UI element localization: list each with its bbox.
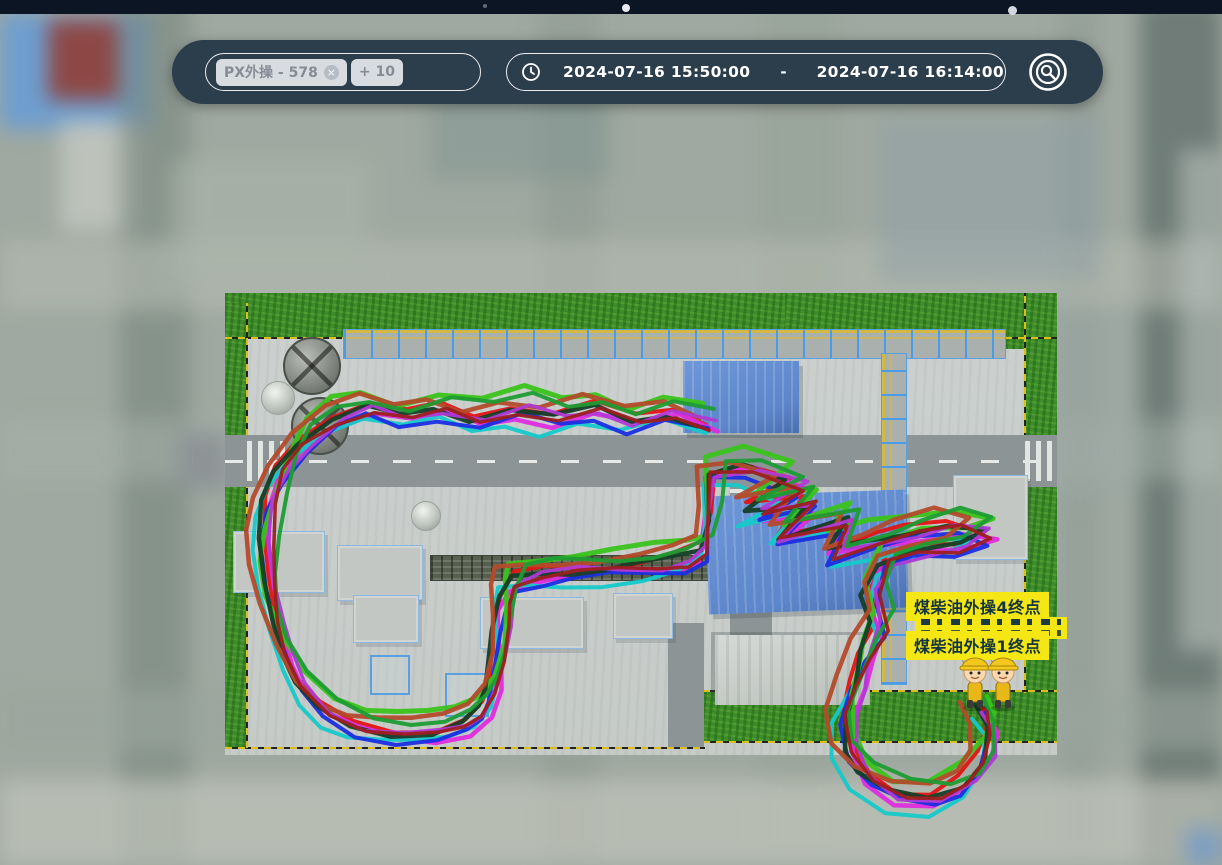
worker-avatar-icon (986, 650, 1020, 712)
clock-icon (521, 62, 541, 82)
trajectory-overlay (0, 0, 1222, 865)
worker-avatars[interactable] (958, 650, 1020, 712)
start-time-value[interactable]: 2024-07-16 15:50:00 (563, 63, 750, 81)
end-time-value[interactable]: 2024-07-16 16:14:00 (817, 63, 1004, 81)
clipped-text-fragment (921, 619, 1061, 625)
time-range-separator: - (780, 63, 786, 81)
person-tag-label: PX外操 - 578 (224, 62, 318, 82)
person-tag-chip[interactable]: PX外操 - 578 × (216, 59, 347, 86)
person-filter-input[interactable]: PX外操 - 578 × + 10 (205, 53, 481, 91)
light-dot (1008, 6, 1017, 15)
search-button[interactable] (1028, 52, 1068, 92)
remove-tag-icon[interactable]: × (324, 65, 339, 80)
time-range-picker[interactable]: 2024-07-16 15:50:00 - 2024-07-16 16:14:0… (506, 53, 1006, 91)
more-tags-badge[interactable]: + 10 (351, 59, 403, 86)
trajectory-mid-green (275, 393, 994, 784)
search-toolbar: PX外操 - 578 × + 10 2024-07-16 15:50:00 - … (172, 40, 1103, 104)
trajectory-magenta (269, 410, 998, 806)
top-strip (0, 0, 1222, 14)
light-dot (483, 4, 487, 8)
map-viewport[interactable]: 煤柴油外操4终点 煤柴油外操1终点 (0, 0, 1222, 865)
light-dot (622, 4, 630, 12)
